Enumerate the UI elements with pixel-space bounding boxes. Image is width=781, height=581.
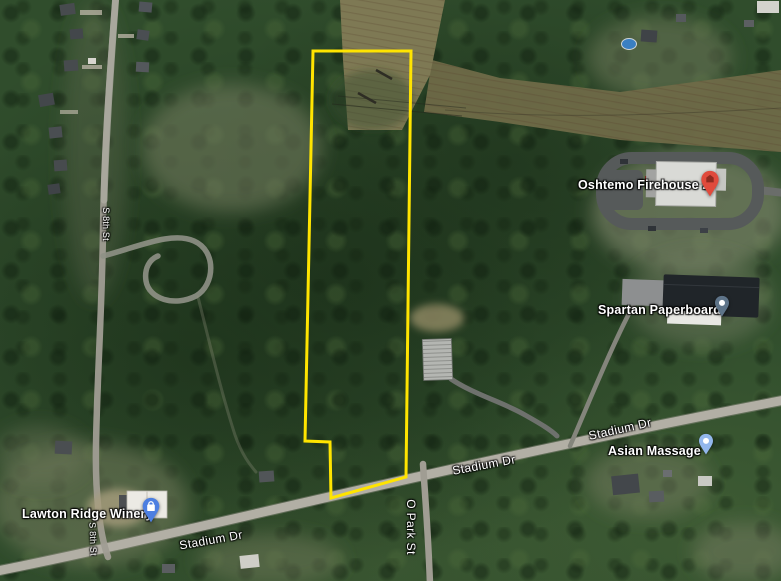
dot-icon [719, 300, 725, 306]
poi-label-asian-massage[interactable]: Asian Massage [608, 444, 701, 458]
poi-label-spartan-paperboard[interactable]: Spartan Paperboard [598, 303, 721, 317]
map-pin-lawton-ridge-winery[interactable] [142, 497, 161, 524]
map-pin-firehouse[interactable] [700, 170, 720, 198]
map-ground-layer [0, 0, 781, 581]
satellite-map-viewport[interactable]: Stadium Dr Stadium Dr Stadium Dr O Park … [0, 0, 781, 581]
shopping-bag-icon-body [147, 505, 155, 511]
map-pin-spartan-paperboard[interactable] [714, 295, 730, 318]
shop-building-near-parcel [422, 338, 452, 380]
road-label-8th-st-south: S 8th St [87, 522, 98, 556]
road-label-8th-st-north: S 8th St [101, 207, 111, 241]
map-pin-asian-massage[interactable] [698, 433, 714, 456]
poi-label-oshtemo-firehouse[interactable]: Oshtemo Firehouse 2 [578, 178, 710, 192]
poi-label-lawton-ridge-winery[interactable]: Lawton Ridge Winery [22, 507, 153, 521]
road-label-o-park-st: O Park St [404, 499, 418, 555]
dot-icon [703, 438, 709, 444]
